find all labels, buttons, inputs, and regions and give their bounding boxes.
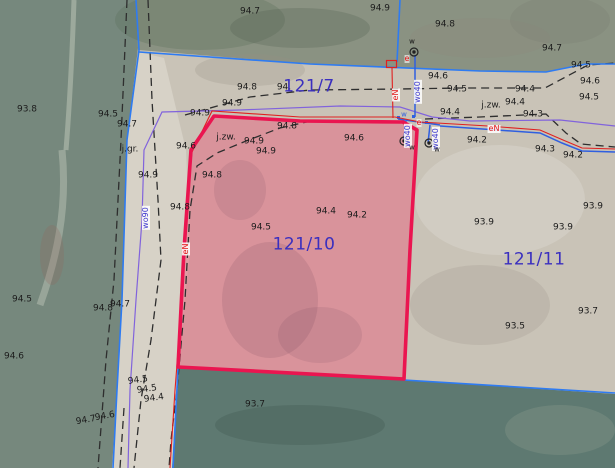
- elevation-label: 94.9: [244, 138, 264, 147]
- map-viewport[interactable]: 94.794.994.894.794.593.894.594.794.894.9…: [0, 0, 615, 468]
- elevation-label: 94.3: [523, 111, 543, 120]
- elevation-label: 94.6: [94, 411, 115, 423]
- elevation-label: 94.9: [256, 148, 276, 157]
- elevation-label: 94.5: [571, 62, 591, 71]
- elevation-label: 93.7: [578, 308, 598, 317]
- elevation-label: 94.6: [176, 143, 196, 152]
- elevation-label: 94.7: [75, 415, 96, 427]
- parcel-number-label: 121/7: [283, 79, 335, 96]
- elevation-label: 94.9: [190, 110, 210, 119]
- elevation-label: 94.7: [110, 301, 130, 310]
- elevation-label: 94.2: [347, 212, 367, 221]
- elevation-label: 94.2: [563, 152, 583, 161]
- elevation-label: 93.9: [583, 203, 603, 212]
- elevation-label: 94.8: [435, 21, 455, 30]
- power-line-label: eN: [182, 243, 190, 256]
- elevation-label: 94.9: [138, 172, 158, 181]
- elevation-label: 93.5: [505, 323, 525, 332]
- elevation-label: 94.8: [202, 172, 222, 181]
- elevation-label: 94.6: [580, 78, 600, 87]
- water-point-label: w: [409, 39, 415, 46]
- elevation-label: 94.3: [535, 146, 555, 155]
- elevation-label: 94.4: [440, 109, 460, 118]
- water-line-label: wo40: [414, 80, 422, 104]
- elevation-label: 93.9: [474, 219, 494, 228]
- water-point-label: w: [434, 147, 440, 154]
- elevation-label: 94.8: [237, 84, 257, 93]
- power-line-label: eN: [488, 125, 501, 133]
- map-labels-layer: 94.794.994.894.794.593.894.594.794.894.9…: [0, 0, 615, 468]
- elevation-label: 94.4: [515, 86, 535, 95]
- power-point-label: e: [417, 119, 422, 127]
- elevation-label: 94.6: [4, 353, 24, 362]
- elevation-label: 93.8: [17, 106, 37, 115]
- annotation-label: j.zw.: [481, 102, 500, 111]
- annotation-label: j.zw.: [216, 134, 235, 143]
- parcel-number-label: 121/10: [273, 237, 336, 254]
- parcel-number-label: 121/11: [503, 252, 566, 269]
- elevation-label: 94.5: [98, 111, 118, 120]
- elevation-label: 94.9: [370, 5, 390, 14]
- elevation-label: 94.5: [579, 94, 599, 103]
- power-point-label: e: [405, 55, 410, 63]
- elevation-label: 94.8: [277, 123, 297, 132]
- elevation-label: 94.7: [240, 8, 260, 17]
- elevation-label: 94.5: [251, 224, 271, 233]
- water-point-label: w: [401, 112, 407, 119]
- power-line-label: eN: [392, 89, 400, 102]
- elevation-label: 94.9: [222, 100, 242, 109]
- water-point-label: w: [409, 145, 415, 152]
- elevation-label: 94.4: [316, 208, 336, 217]
- elevation-label: 94.8: [170, 204, 190, 213]
- elevation-label: 94.7: [542, 45, 562, 54]
- elevation-label: 94.4: [505, 99, 525, 108]
- water-line-label: wo90: [142, 206, 150, 230]
- elevation-label: 94.6: [428, 73, 448, 82]
- elevation-label: 93.9: [553, 224, 573, 233]
- elevation-label: 94.5: [447, 86, 467, 95]
- elevation-label: 94.7: [117, 121, 137, 130]
- annotation-label: j.gr.: [122, 146, 139, 155]
- elevation-label: 94.4: [143, 393, 164, 405]
- elevation-label: 94.5: [12, 296, 32, 305]
- elevation-label: 93.7: [245, 401, 265, 410]
- elevation-label: 94.2: [467, 137, 487, 146]
- elevation-label: 94.6: [344, 135, 364, 144]
